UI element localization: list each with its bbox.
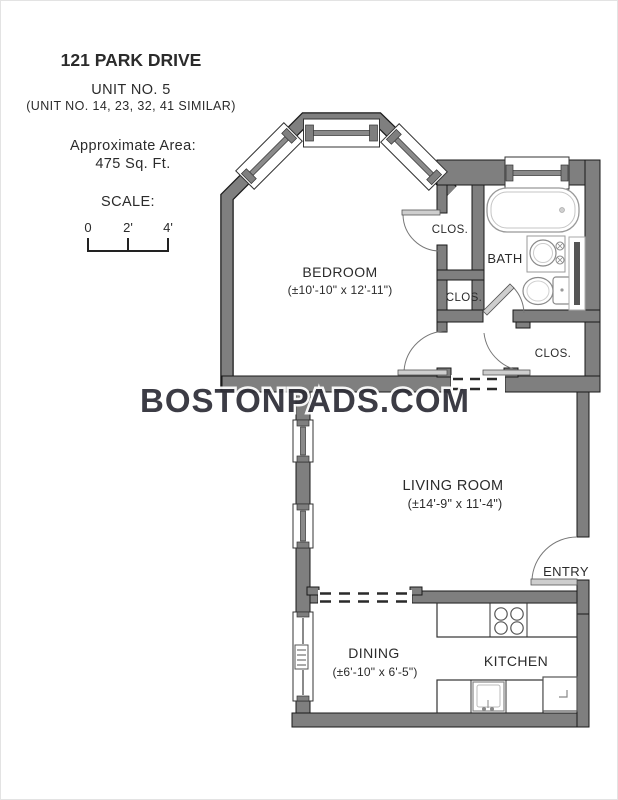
scale-label: SCALE:	[101, 194, 155, 210]
bottom-wall	[292, 713, 589, 727]
entry-label: ENTRY	[543, 564, 589, 579]
closet2-bottom-wall	[437, 310, 483, 322]
closet1-bottom-wall	[437, 270, 484, 280]
bathtub-icon	[487, 188, 579, 232]
mid-wall-right	[505, 376, 600, 392]
living-room-label: LIVING ROOM	[402, 478, 503, 494]
living-room-dims: (±14'-9" x 11'-4")	[408, 497, 503, 511]
living-window-2	[293, 504, 313, 548]
closet1-label: CLOS.	[432, 224, 469, 236]
scale-tick-2: 2'	[123, 220, 133, 235]
divider-wall	[412, 591, 589, 603]
area-label: Approximate Area:	[70, 138, 196, 154]
bath-label: BATH	[487, 251, 522, 266]
floorplan-page: 121 PARK DRIVE UNIT NO. 5 (UNIT NO. 14, …	[0, 0, 618, 800]
bay-window-top	[304, 119, 380, 147]
scale-tick-4: 4'	[163, 220, 173, 235]
radiator-icon	[295, 645, 308, 669]
area-value: 475 Sq. Ft.	[95, 156, 170, 172]
kitchen-counter-bottom	[437, 680, 543, 713]
hall-stub-wall	[437, 322, 447, 332]
scale-bar: 0 2' 4'	[84, 220, 172, 252]
kitchen-sink-icon	[473, 682, 504, 711]
similar-units: (UNIT NO. 14, 23, 32, 41 SIMILAR)	[26, 99, 236, 113]
bedroom-dims: (±10'-10" x 12'-11")	[288, 283, 393, 297]
bedroom-label: BEDROOM	[302, 264, 377, 280]
bath-bottom-wall-b	[513, 310, 600, 322]
fixtures	[437, 188, 585, 713]
entry-corner-block	[577, 580, 589, 614]
bath-radiator-icon	[569, 237, 585, 310]
dining-window	[293, 612, 313, 701]
divider-jamb-left	[307, 587, 319, 595]
bath-window	[505, 157, 569, 189]
closet1-left-wall-top	[437, 185, 447, 213]
page-title: 121 PARK DRIVE	[61, 50, 202, 70]
unit-number: UNIT NO. 5	[91, 82, 170, 98]
bay-window-left	[236, 123, 302, 189]
kitchen-counter-top	[437, 603, 577, 637]
dining-dims: (±6'-10" x 6'-5")	[332, 665, 417, 679]
closet2-label: CLOS.	[446, 292, 483, 304]
refrigerator-icon	[543, 677, 577, 711]
closet3-label: CLOS.	[535, 348, 572, 360]
dining-opening	[318, 590, 412, 604]
closet1-left-wall-bottom	[437, 245, 447, 270]
closet3-jamb-stub	[516, 322, 530, 328]
right-wall-upper	[585, 160, 600, 392]
scale-tick-0: 0	[84, 220, 91, 235]
living-window-1	[293, 420, 313, 462]
bath-sink-icon	[527, 236, 565, 272]
scale-bar-line	[87, 238, 169, 252]
floorplan-svg: 121 PARK DRIVE UNIT NO. 5 (UNIT NO. 14, …	[0, 0, 618, 800]
header-block: 121 PARK DRIVE UNIT NO. 5 (UNIT NO. 14, …	[26, 50, 236, 252]
watermark: BOSTONPADS.COM	[140, 382, 470, 419]
toilet-icon	[523, 277, 571, 305]
dining-label: DINING	[348, 645, 399, 661]
kitchen-label: KITCHEN	[484, 653, 548, 669]
bay-window-right	[381, 124, 447, 190]
right-wall-living	[577, 392, 589, 537]
right-wall-kitchen	[577, 614, 589, 727]
